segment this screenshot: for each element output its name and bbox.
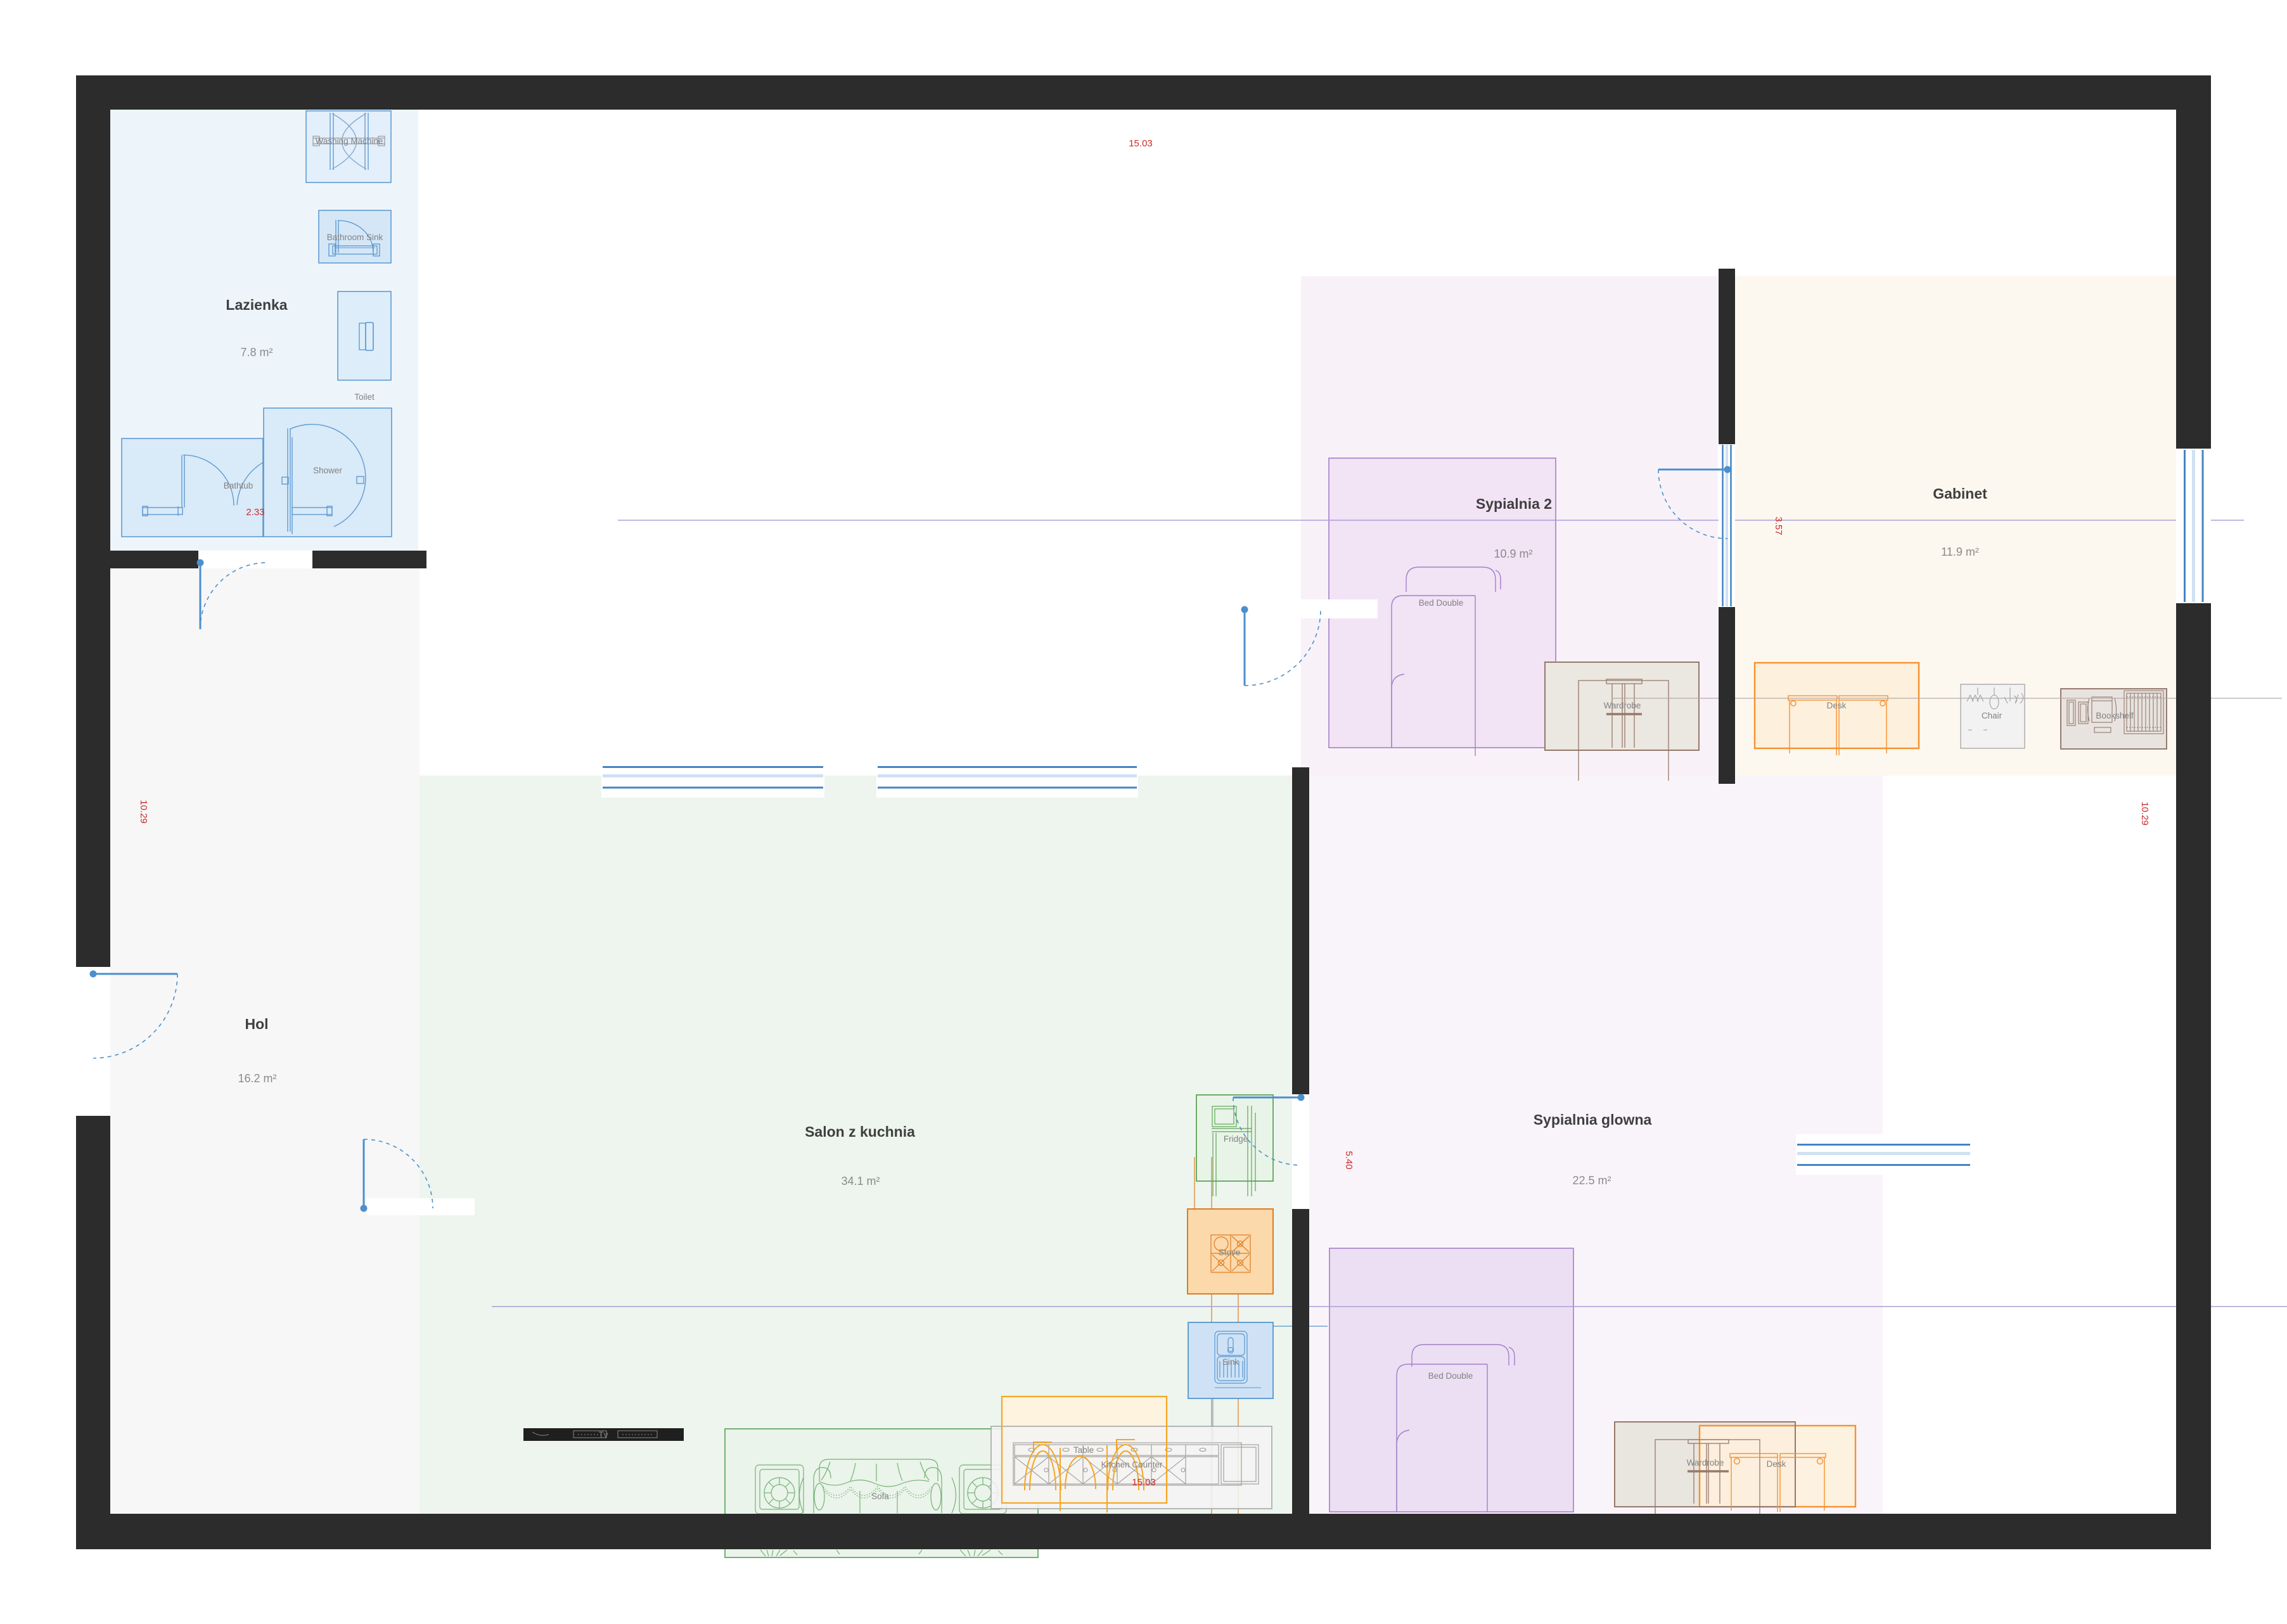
- svg-text:Bathroom Sink: Bathroom Sink: [327, 233, 383, 242]
- svg-text:Table: Table: [1073, 1445, 1094, 1455]
- svg-text:11.9 m²: 11.9 m²: [1941, 546, 1979, 558]
- svg-text:Desk: Desk: [1827, 701, 1847, 710]
- svg-text:Kitchen Counter: Kitchen Counter: [1101, 1460, 1163, 1469]
- svg-text:Shower: Shower: [313, 466, 342, 475]
- svg-text:Lazienka: Lazienka: [226, 297, 287, 313]
- svg-text:Hol: Hol: [245, 1016, 268, 1032]
- svg-text:Bathtub: Bathtub: [224, 481, 253, 490]
- svg-text:Wardrobe: Wardrobe: [1604, 701, 1641, 710]
- svg-text:Wardrobe: Wardrobe: [1687, 1458, 1724, 1467]
- svg-text:Washing Machine: Washing Machine: [316, 136, 383, 146]
- svg-text:16.2 m²: 16.2 m²: [238, 1072, 276, 1085]
- svg-text:15.03: 15.03: [1132, 1477, 1156, 1488]
- svg-text:Bookshelf: Bookshelf: [2096, 711, 2134, 720]
- svg-text:3.57: 3.57: [1773, 516, 1784, 535]
- svg-text:Sypialnia 2: Sypialnia 2: [1476, 496, 1552, 512]
- svg-text:Salon z kuchnia: Salon z kuchnia: [805, 1123, 915, 1140]
- svg-text:Sofa: Sofa: [871, 1492, 889, 1501]
- svg-text:Chair: Chair: [1982, 711, 2002, 720]
- svg-text:Fridge: Fridge: [1224, 1134, 1248, 1144]
- svg-text:10.29: 10.29: [2139, 802, 2150, 826]
- svg-text:Bed Double: Bed Double: [1428, 1371, 1473, 1381]
- svg-text:Bed Double: Bed Double: [1419, 598, 1464, 608]
- svg-text:Sypialnia glowna: Sypialnia glowna: [1534, 1111, 1652, 1128]
- svg-text:Stove: Stove: [1219, 1248, 1241, 1257]
- svg-text:7.8 m²: 7.8 m²: [240, 346, 272, 359]
- svg-text:15.03: 15.03: [1129, 138, 1153, 149]
- svg-text:Gabinet: Gabinet: [1933, 485, 1987, 502]
- svg-text:34.1 m²: 34.1 m²: [841, 1175, 880, 1187]
- svg-text:Sink: Sink: [1222, 1357, 1240, 1367]
- svg-text:Desk: Desk: [1767, 1459, 1786, 1469]
- svg-text:2.33: 2.33: [246, 507, 264, 518]
- svg-text:22.5 m²: 22.5 m²: [1572, 1174, 1611, 1187]
- svg-text:5.40: 5.40: [1343, 1151, 1354, 1169]
- svg-text:Tv: Tv: [599, 1430, 608, 1440]
- svg-text:Toilet: Toilet: [354, 392, 375, 402]
- svg-text:10.9 m²: 10.9 m²: [1494, 547, 1532, 560]
- svg-text:10.29: 10.29: [138, 800, 149, 824]
